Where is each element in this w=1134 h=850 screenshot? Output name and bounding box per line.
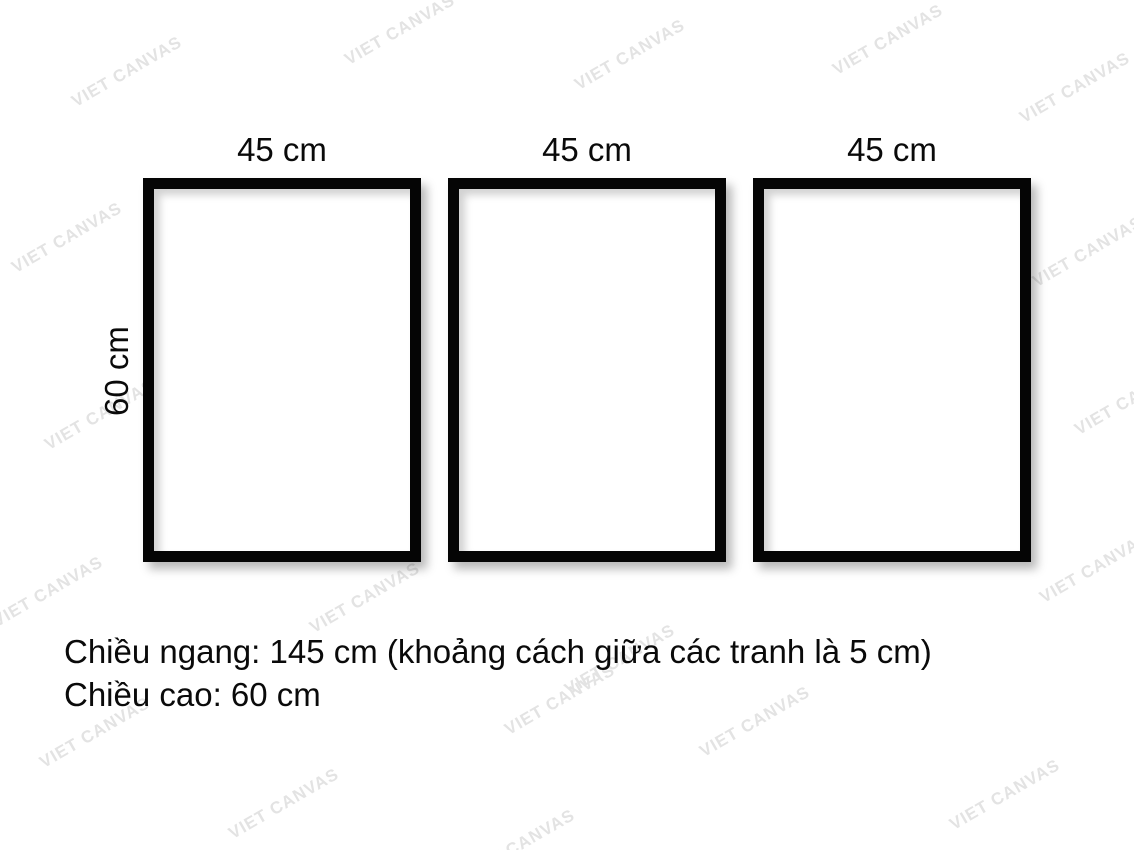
watermark-text: VIET CANVAS [8, 198, 125, 277]
watermark-text: VIET CANVAS [341, 0, 458, 70]
frame-1-width-label: 45 cm [143, 131, 421, 169]
watermark-text: VIET CANVAS [0, 552, 107, 631]
frame-1 [143, 178, 421, 562]
watermark-text: VIET CANVAS [68, 32, 185, 111]
watermark-text: VIET CANVAS [225, 764, 342, 843]
watermark-text: VIET CANVAS [1071, 360, 1134, 439]
caption: Chiều ngang: 145 cm (khoảng cách giữa cá… [64, 630, 932, 716]
frame-2 [448, 178, 726, 562]
watermark-text: VIET CANVAS [829, 0, 946, 79]
caption-line-vertical: Chiều cao: 60 cm [64, 673, 932, 716]
dimension-diagram: VIET CANVASVIET CANVASVIET CANVASVIET CA… [0, 0, 1134, 850]
watermark-text: VIET CANVAS [1036, 528, 1134, 607]
caption-line-horizontal: Chiều ngang: 145 cm (khoảng cách giữa cá… [64, 630, 932, 673]
frame-3 [753, 178, 1031, 562]
watermark-text: VIET CANVAS [461, 805, 578, 850]
frame-2-width-label: 45 cm [448, 131, 726, 169]
watermark-text: VIET CANVAS [571, 15, 688, 94]
watermark-text: VIET CANVAS [1016, 48, 1133, 127]
watermark-text: VIET CANVAS [306, 558, 423, 637]
frame-3-width-label: 45 cm [753, 131, 1031, 169]
watermark-text: VIET CANVAS [946, 755, 1063, 834]
frame-height-label: 60 cm [98, 326, 136, 416]
watermark-text: VIET CANVAS [1029, 212, 1134, 291]
